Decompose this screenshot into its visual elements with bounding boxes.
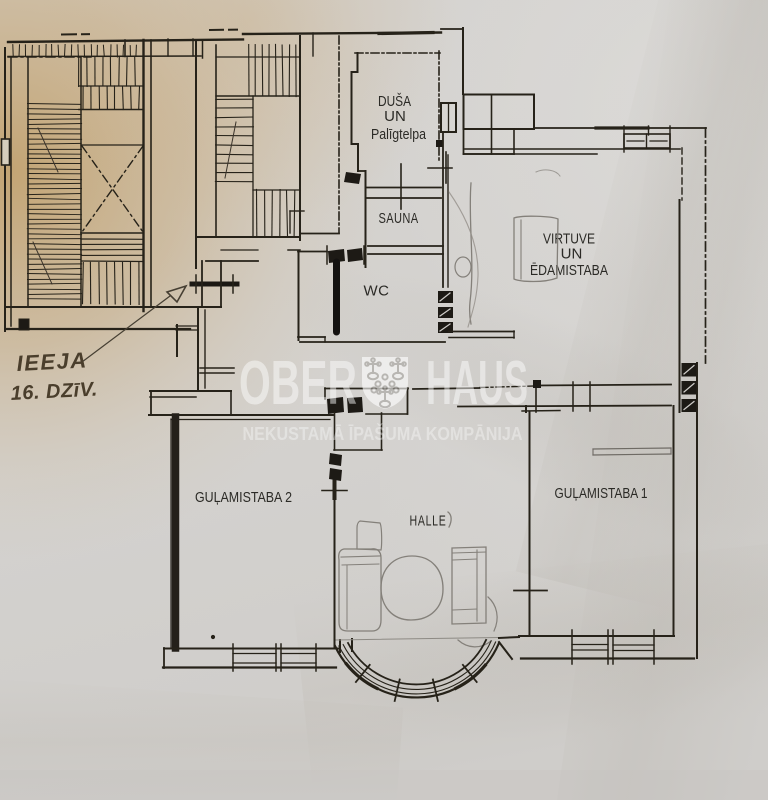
svg-text:GUĻAMISTABA 1: GUĻAMISTABA 1 [555, 485, 648, 502]
svg-text:IEEJA: IEEJA [16, 347, 88, 376]
svg-text:UN: UN [384, 108, 406, 125]
svg-text:UN: UN [561, 246, 583, 263]
svg-text:WC: WC [364, 283, 390, 300]
svg-text:HALLE: HALLE [410, 513, 447, 530]
svg-text:SAUNA: SAUNA [379, 210, 419, 227]
svg-text:GUĻAMISTABA 2: GUĻAMISTABA 2 [195, 489, 292, 506]
svg-text:OBER: OBER [239, 349, 357, 418]
svg-text:HAUS: HAUS [426, 349, 528, 418]
svg-text:NEKUSTAMĀ ĪPAŠUMA KOMPĀNIJA: NEKUSTAMĀ ĪPAŠUMA KOMPĀNIJA [243, 423, 523, 444]
svg-text:ĒDAMISTABA: ĒDAMISTABA [530, 262, 608, 279]
svg-text:16. DZīV.: 16. DZīV. [10, 378, 98, 405]
svg-text:Palīgtelpa: Palīgtelpa [371, 126, 427, 143]
